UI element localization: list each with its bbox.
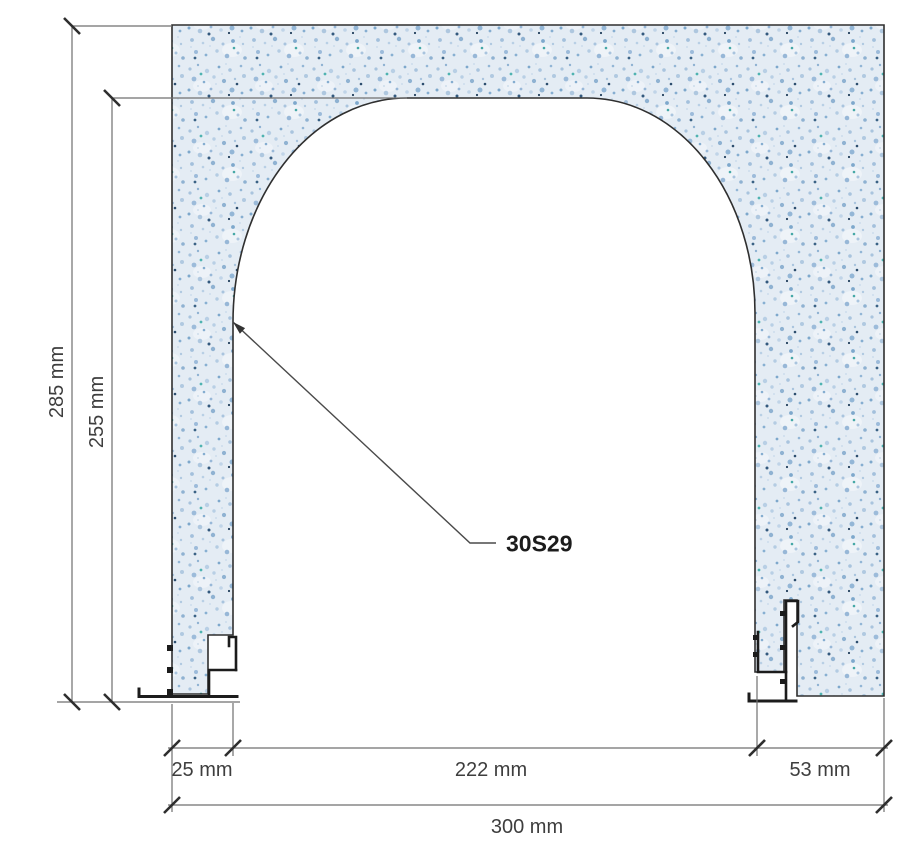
- dim-label-total-width: 300 mm: [491, 817, 563, 837]
- dim-label-total-height: 285 mm: [47, 346, 67, 418]
- dim-label-opening-width: 222 mm: [455, 760, 527, 780]
- leader-line: [233, 322, 496, 543]
- dim-label-opening-height: 255 mm: [87, 376, 107, 448]
- dim-label-right-jamb: 53 mm: [789, 760, 850, 780]
- part-label: 30S29: [506, 533, 573, 556]
- drawing-canvas: [0, 0, 907, 847]
- dim-label-left-jamb: 25 mm: [171, 760, 232, 780]
- arch-section-drawing: 285 mm 255 mm 25 mm 222 mm 53 mm 300 mm …: [0, 0, 907, 847]
- arch-section-body: [172, 25, 884, 696]
- right-base-runner: [749, 694, 796, 701]
- left-step-profile: [209, 670, 236, 695]
- left-j-bead: [229, 637, 236, 670]
